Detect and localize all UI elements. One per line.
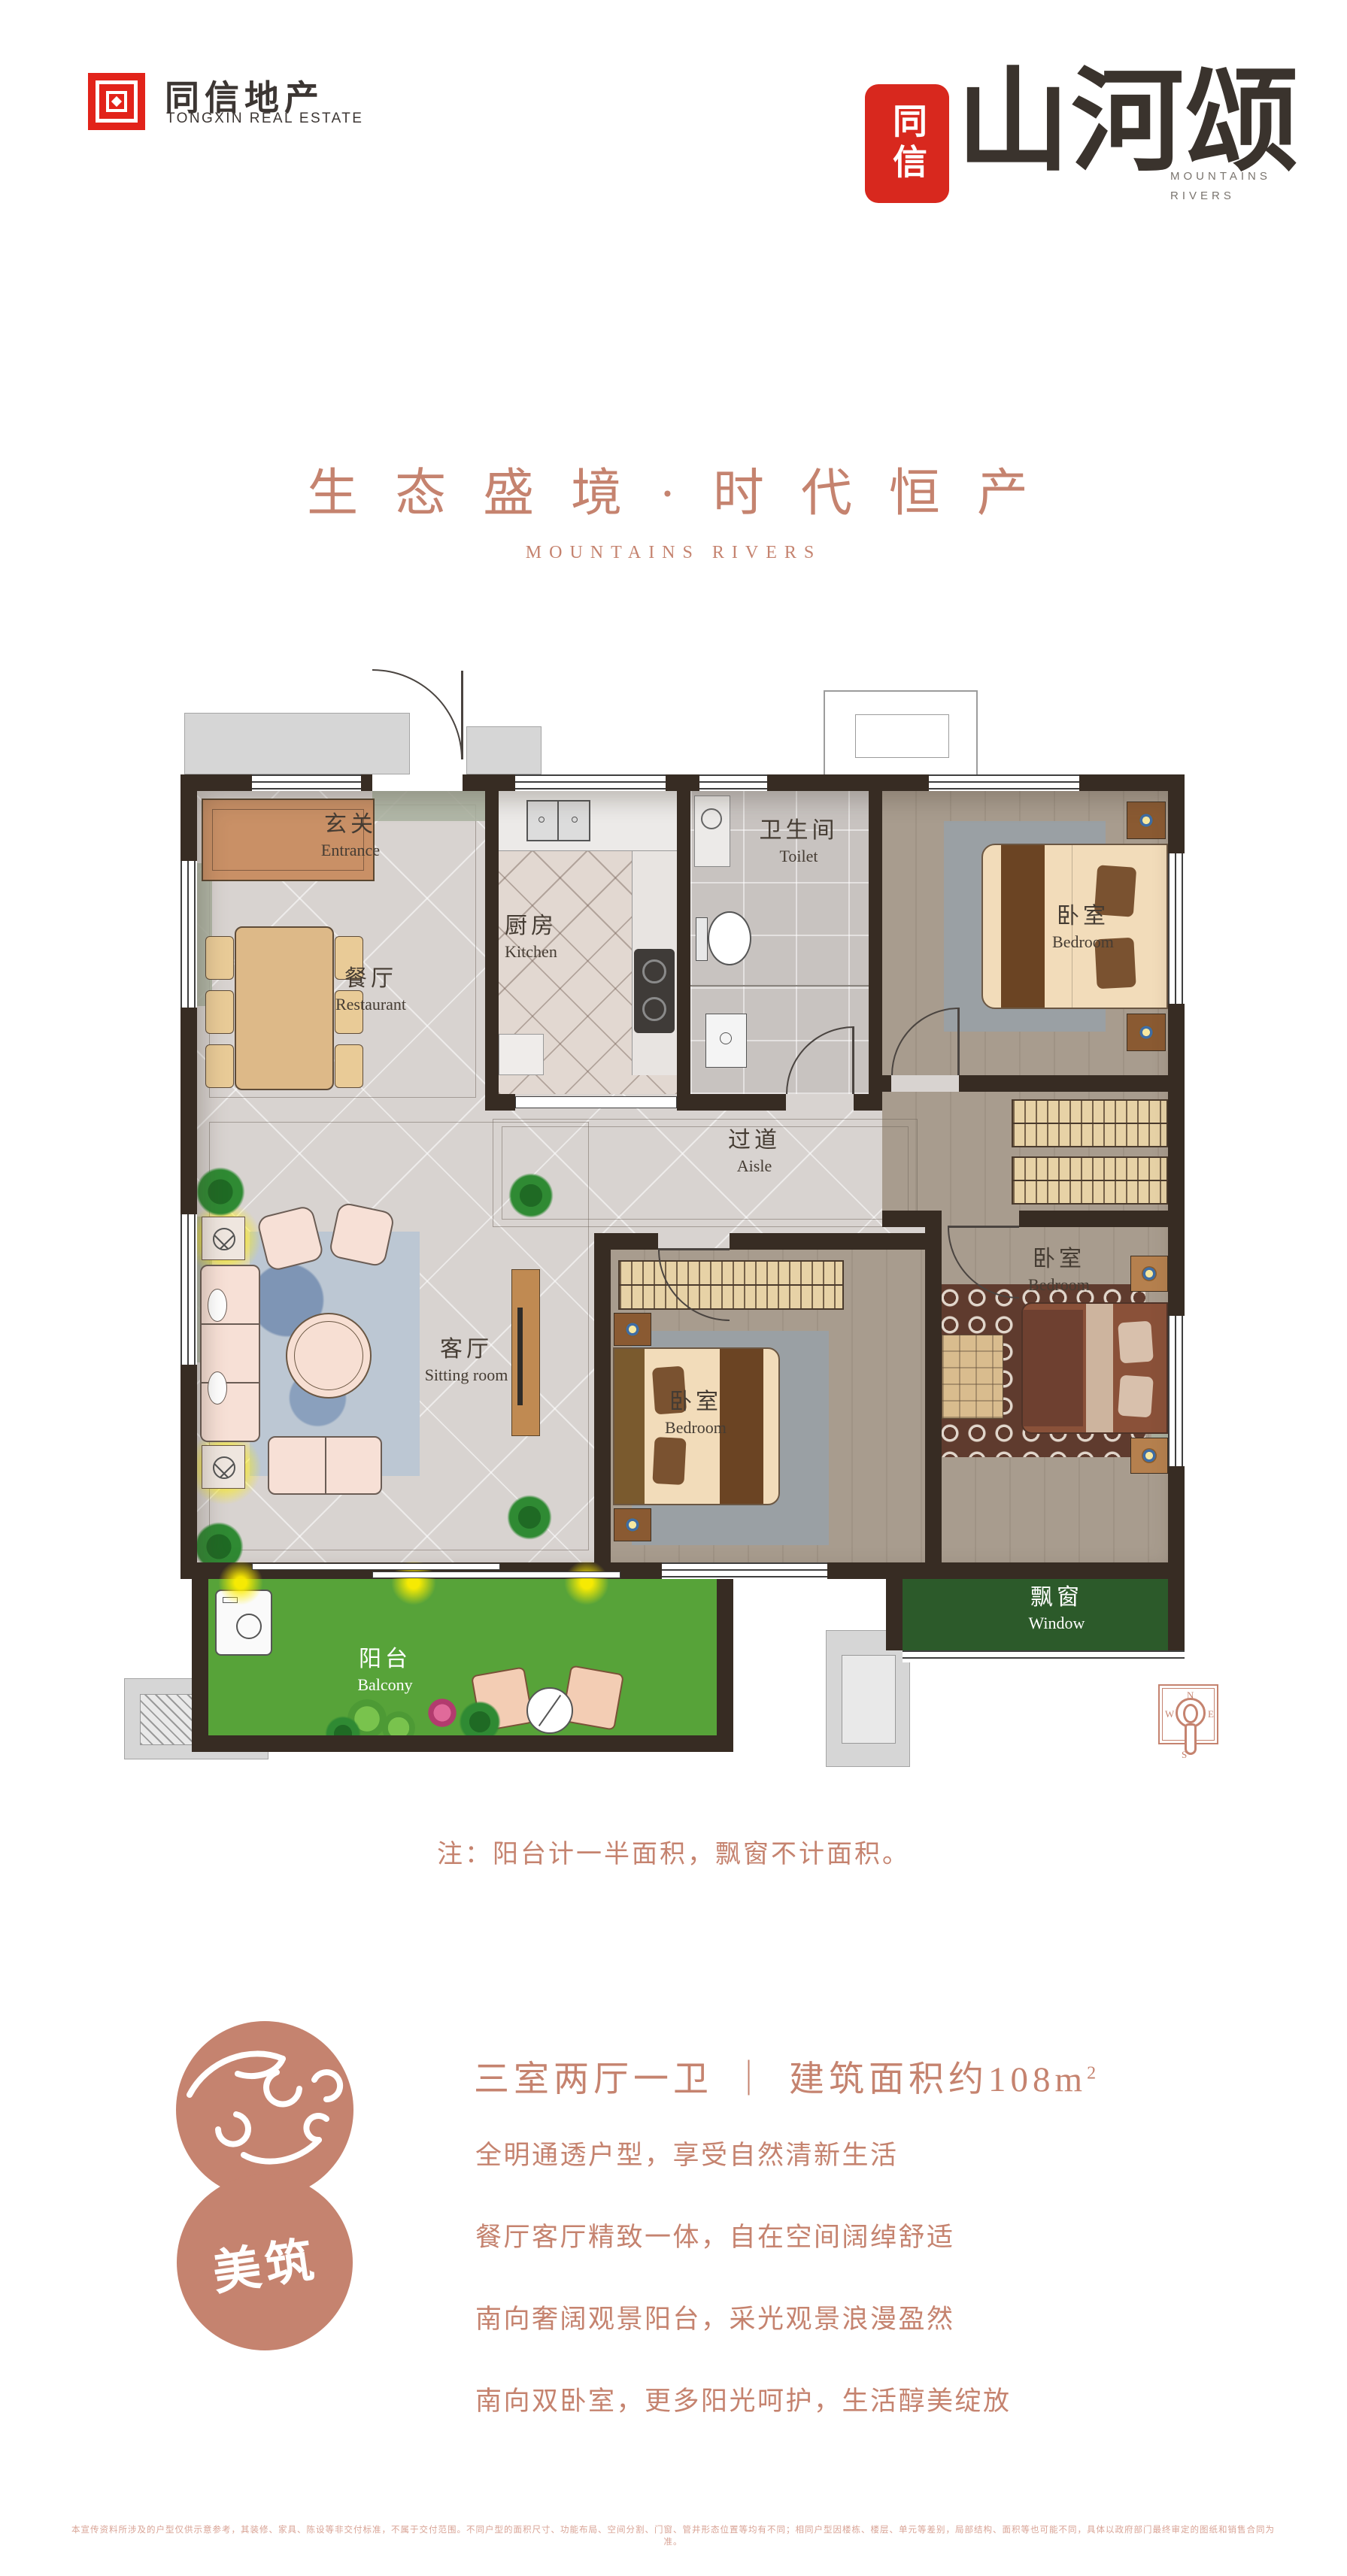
room-label-restaurant: 餐厅 Restaurant <box>311 966 431 1014</box>
floor-plan: 玄关 Entrance 餐厅 Restaurant 厨房 Kitchen 卫生间… <box>105 654 1279 1782</box>
feature-item: 南向双卧室，更多阳光呵护，生活醇美绽放 <box>475 2380 1012 2418</box>
bedroom3-door-leaf <box>948 1226 1019 1228</box>
window <box>1168 1316 1185 1466</box>
bedroom2-door-leaf <box>658 1248 730 1250</box>
page-subtitle: MOUNTAINS RIVERS <box>0 543 1347 563</box>
brand-name-en: TONGXIN REAL ESTATE <box>166 111 363 127</box>
badge-circle: 美筑 <box>177 2174 353 2350</box>
wall <box>677 1094 786 1111</box>
window <box>515 774 666 791</box>
flower-icon <box>427 1698 457 1728</box>
wall <box>854 1094 882 1111</box>
room-label-window: 飘窗 Window <box>997 1585 1117 1632</box>
compass-e: E <box>1208 1708 1214 1720</box>
window <box>181 1214 197 1365</box>
window <box>929 774 1079 791</box>
seal-text: 同信 <box>882 103 932 184</box>
headline: 三室两厅一卫｜建筑面积约108m2 <box>474 2050 1100 2102</box>
door-opening <box>372 774 463 791</box>
balcony-wall <box>717 1579 733 1752</box>
balcony-wall <box>192 1579 208 1752</box>
wall <box>869 791 882 1094</box>
window <box>699 774 767 791</box>
wall <box>925 1227 942 1562</box>
bay-window-sill <box>903 1650 1185 1662</box>
wall <box>611 1233 658 1250</box>
compass-s: S <box>1182 1749 1187 1761</box>
bay-window-wall <box>1168 1579 1185 1650</box>
window <box>181 861 197 1008</box>
window <box>1168 853 1185 1004</box>
brand-logo-icon <box>88 73 145 130</box>
headline-area: 建筑面积约108m <box>789 2060 1087 2099</box>
project-subtitle: MOUNTAINS RIVERS <box>1170 167 1271 206</box>
equipment-platform <box>824 690 978 776</box>
entrance-door-leaf <box>461 671 463 759</box>
page-title: 生 态 盛 境 · 时 代 恒 产 <box>0 451 1347 526</box>
bay-window-wall <box>886 1579 903 1650</box>
room-label-kitchen: 厨房 Kitchen <box>478 914 584 961</box>
toilet-door-leaf <box>852 1026 854 1094</box>
plan-note: 注：阳台计一半面积，飘窗不计面积。 <box>0 1833 1347 1870</box>
ac-platform <box>826 1630 910 1767</box>
feature-item: 全明通透户型，享受自然清新生活 <box>475 2134 1012 2172</box>
balcony-light <box>564 1560 609 1605</box>
window <box>662 1562 827 1579</box>
badge-text: 美筑 <box>208 2221 321 2305</box>
room-label-bedroom2: 卧室 Bedroom <box>636 1390 756 1437</box>
room-label-entrance: 玄关 Entrance <box>290 812 411 859</box>
poster: 同信地产 TONGXIN REAL ESTATE 同信 山河颂 MOUNTAIN… <box>0 0 1347 2576</box>
feature-list: 全明通透户型，享受自然清新生活 餐厅客厅精致一体，自在空间阔绰舒适 南向奢阔观景… <box>475 2134 1012 2462</box>
wall <box>677 791 690 1094</box>
ac-unit <box>842 1655 896 1744</box>
wall <box>959 1075 1168 1092</box>
sliding-door <box>372 1571 620 1578</box>
feature-item: 餐厅客厅精致一体，自在空间阔绰舒适 <box>475 2216 1012 2254</box>
headline-divider: ｜ <box>713 2060 789 2099</box>
room-label-bedroom1: 卧室 Bedroom <box>1023 904 1143 951</box>
wall <box>485 1094 515 1111</box>
wall <box>882 1211 942 1227</box>
room-label-bedroom3: 卧室 Bedroom <box>999 1247 1119 1294</box>
compass-icon: N W E <box>1158 1684 1218 1744</box>
headline-rooms: 三室两厅一卫 <box>474 2060 713 2099</box>
feature-item: 南向奢阔观景阳台，采光观景浪漫盈然 <box>475 2298 1012 2336</box>
wall <box>594 1233 611 1562</box>
ac-unit <box>855 714 949 758</box>
room-label-aisle: 过道 Aisle <box>694 1128 815 1175</box>
bedroom1-door-leaf <box>957 1008 960 1075</box>
wall <box>730 1233 925 1250</box>
kitchen-sliding-door <box>515 1096 677 1108</box>
sliding-door <box>252 1563 500 1570</box>
table-line <box>538 1695 561 1726</box>
disclaimer: 本宣传资料所涉及的户型仅供示意参考，其装修、家具、陈设等非交付标准，不属于交付范… <box>71 2523 1275 2547</box>
washer-drum-icon <box>236 1614 262 1639</box>
headline-sup: 2 <box>1087 2063 1100 2083</box>
entrance-door-arc <box>372 669 463 759</box>
wall <box>1019 1211 1168 1227</box>
compass-w: W <box>1165 1708 1174 1720</box>
compass-center <box>1183 1704 1198 1723</box>
wall <box>882 1075 891 1092</box>
seal-icon: 同信 <box>865 84 949 203</box>
room-label-balcony: 阳台 Balcony <box>325 1647 445 1694</box>
ac-platform <box>466 726 542 774</box>
room-label-toilet: 卫生间 Toilet <box>746 818 851 865</box>
window <box>252 774 361 791</box>
room-label-sitting: 客厅 Sitting room <box>406 1337 526 1384</box>
balcony-wall <box>192 1735 733 1752</box>
balcony-table <box>526 1687 573 1734</box>
